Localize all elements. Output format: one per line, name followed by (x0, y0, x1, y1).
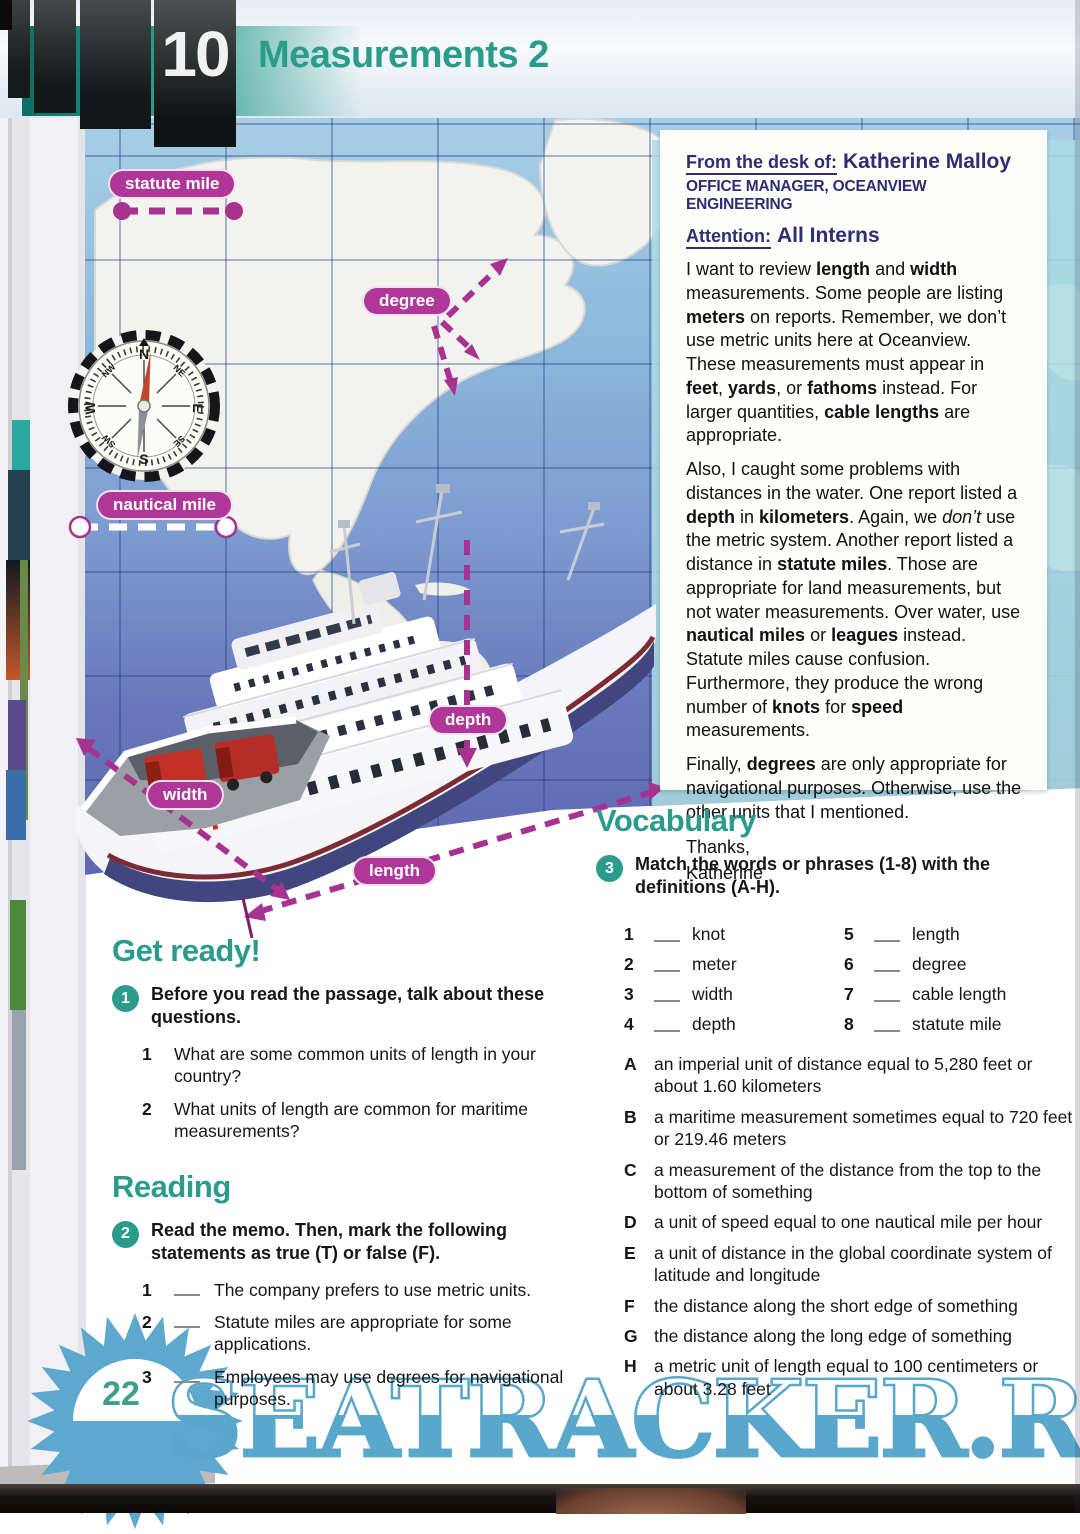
task-instruction: Match the words or phrases (1-8) with th… (635, 853, 1078, 899)
definition-item: Ca measurement of the distance from the … (624, 1159, 1078, 1204)
edge-photo-strip (6, 770, 26, 840)
scan-bottom-edge (0, 1484, 1080, 1513)
ship-illustration (48, 412, 678, 917)
statement-item: 1 The company prefers to use metric unit… (142, 1279, 584, 1301)
task-instruction: Read the memo. Then, mark the following … (151, 1219, 584, 1265)
edge-photo-strip (10, 900, 26, 1010)
vocabulary-section: Vocabulary 3 Match the words or phrases … (596, 803, 1078, 1400)
get-ready-heading: Get ready! (112, 933, 584, 969)
definition-text: a unit of distance in the global coordin… (654, 1242, 1078, 1287)
label-degree: degree (362, 286, 452, 316)
memo-paragraph: I want to review length and width measur… (686, 258, 1025, 448)
answer-blank (874, 985, 900, 1002)
memo-paragraph: Also, I caught some problems with distan… (686, 458, 1025, 743)
term-item: 8statute mile (844, 1005, 1076, 1035)
answer-blank (174, 1279, 200, 1296)
page-title: Measurements 2 (258, 34, 549, 77)
task-instruction: Before you read the passage, talk about … (151, 983, 584, 1029)
answer-blank (654, 1015, 680, 1032)
memo-from-label: From the desk of: (686, 152, 837, 175)
edge-photo-strip (12, 1010, 26, 1170)
answer-blank (174, 1311, 200, 1328)
term-word: width (692, 984, 733, 1005)
answer-blank (174, 1366, 200, 1383)
definition-item: Ha metric unit of length equal to 100 ce… (624, 1355, 1078, 1400)
term-item: 2meter (624, 945, 844, 975)
textbook-page: 10 Measurements 2 (0, 0, 1080, 1513)
reading-heading: Reading (112, 1169, 584, 1205)
memo-attention-label: Attention: (686, 226, 771, 249)
term-item: 6degree (844, 945, 1076, 975)
answer-blank (874, 955, 900, 972)
term-word: statute mile (912, 1014, 1001, 1035)
term-word: depth (692, 1014, 736, 1035)
term-item: 3width (624, 975, 844, 1005)
label-length: length (352, 856, 437, 886)
answer-blank (654, 955, 680, 972)
memo-attention-value: All Interns (777, 224, 880, 247)
term-item: 5length (844, 915, 1076, 945)
statement-item: 3 Employees may use degrees for navigati… (142, 1366, 584, 1411)
definition-text: the distance along the short edge of som… (654, 1295, 1018, 1317)
label-statute-mile: statute mile (108, 169, 236, 199)
answer-blank (654, 985, 680, 1002)
edge-photo-strip (8, 700, 26, 770)
answer-blank (654, 925, 680, 942)
compass-n: N (139, 346, 149, 362)
statement-text: The company prefers to use metric units. (214, 1279, 531, 1301)
unit-tab-bar (34, 0, 76, 113)
term-item: 7cable length (844, 975, 1076, 1005)
unit-number: 10 (161, 22, 228, 86)
definition-text: a metric unit of length equal to 100 cen… (654, 1355, 1078, 1400)
memo-note: From the desk of:Katherine Malloy OFFICE… (660, 130, 1047, 790)
edge-photo-strip (12, 420, 30, 470)
statement-item: 2 Statute miles are appropriate for some… (142, 1311, 584, 1356)
task-number-badge: 2 (112, 1221, 139, 1248)
definition-text: an imperial unit of distance equal to 5,… (654, 1053, 1078, 1098)
question-text: What are some common units of length in … (174, 1043, 584, 1088)
scan-right-shadow (1075, 0, 1080, 1513)
hand-in-photo (556, 1488, 746, 1514)
definition-item: Ea unit of distance in the global coordi… (624, 1242, 1078, 1287)
definition-text: a measurement of the distance from the t… (654, 1159, 1078, 1204)
definition-text: the distance along the long edge of some… (654, 1325, 1012, 1347)
scan-corner (0, 0, 12, 30)
term-word: length (912, 924, 960, 945)
label-depth: depth (428, 705, 508, 735)
answer-blank (874, 1015, 900, 1032)
question-item: 2 What units of length are common for ma… (142, 1098, 584, 1143)
task-number-badge: 1 (112, 985, 139, 1012)
memo-from-title: OFFICE MANAGER, OCEANVIEW ENGINEERING (686, 178, 1025, 214)
definition-text: a maritime measurement sometimes equal t… (654, 1106, 1078, 1151)
definition-item: Fthe distance along the short edge of so… (624, 1295, 1078, 1317)
vocabulary-heading: Vocabulary (596, 803, 1078, 839)
unit-tab-bar (80, 0, 151, 129)
term-item: 1knot (624, 915, 844, 945)
statement-text: Employees may use degrees for navigation… (214, 1366, 584, 1411)
definition-item: Da unit of speed equal to one nautical m… (624, 1211, 1078, 1233)
matching-terms: 1knot 2meter 3width 4depth 5length 6degr… (624, 915, 1078, 1035)
definition-text: a unit of speed equal to one nautical mi… (654, 1211, 1042, 1233)
question-text: What units of length are common for mari… (174, 1098, 584, 1143)
term-word: degree (912, 954, 967, 975)
term-word: knot (692, 924, 725, 945)
unit-number-box: 10 (154, 0, 236, 147)
left-column: Get ready! 1 Before you read the passage… (112, 933, 584, 1411)
term-word: cable length (912, 984, 1006, 1005)
label-nautical-mile: nautical mile (96, 490, 233, 520)
term-item: 4depth (624, 1005, 844, 1035)
task-number-badge: 3 (596, 855, 623, 882)
label-width: width (146, 780, 224, 810)
answer-blank (874, 925, 900, 942)
memo-from-name: Katherine Malloy (843, 150, 1011, 173)
statement-text: Statute miles are appropriate for some a… (214, 1311, 584, 1356)
definition-item: Ba maritime measurement sometimes equal … (624, 1106, 1078, 1151)
edge-photo-strip (8, 470, 30, 560)
definition-item: Aan imperial unit of distance equal to 5… (624, 1053, 1078, 1098)
question-item: 1 What are some common units of length i… (142, 1043, 584, 1088)
definition-item: Gthe distance along the long edge of som… (624, 1325, 1078, 1347)
term-word: meter (692, 954, 737, 975)
